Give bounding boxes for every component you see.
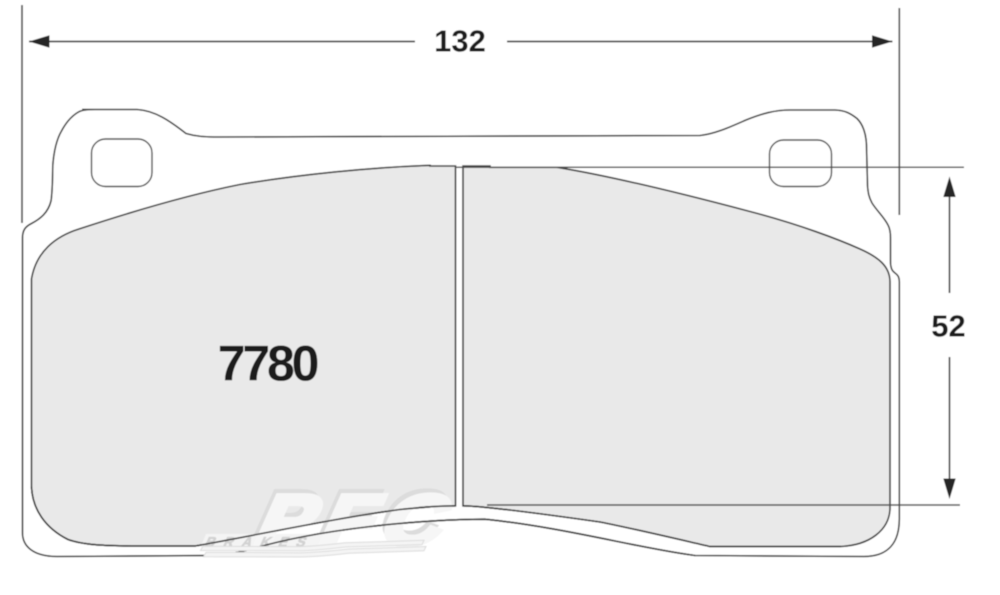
svg-text:7780: 7780	[218, 336, 318, 392]
svg-text:52: 52	[931, 309, 965, 344]
svg-text:132: 132	[434, 24, 486, 59]
